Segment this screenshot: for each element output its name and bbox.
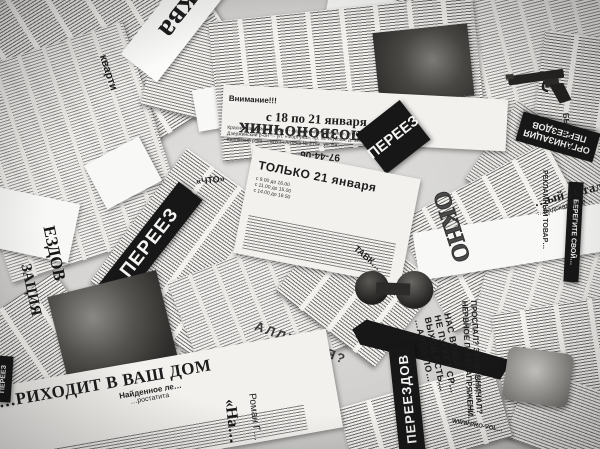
teapot-face-photo [502, 346, 575, 409]
roman-byline: Роман Г… [246, 393, 263, 442]
pereez-edge-label: ПЕРЕЕЗ [0, 365, 7, 394]
newsprint-collage: осква кварти Внимание!!! с 18 по 21 янва… [0, 0, 600, 449]
bystro-label: БЫСТРО… [561, 113, 574, 157]
chto-wrap: «ЧТО» [195, 169, 225, 190]
bystro-wrap: БЫСТРО… [558, 112, 580, 157]
chto-label: «ЧТО» [196, 174, 225, 187]
pere-label: ПЕРЕЕЗ [364, 112, 422, 162]
pistol-illustration [502, 53, 581, 115]
pistol-photo [502, 53, 581, 115]
attention-label: Внимание!!! [229, 94, 277, 105]
binocular-bridge [376, 282, 410, 295]
pereezdov-banner-label: ПЕРЕЕЗДОВ [395, 353, 419, 444]
